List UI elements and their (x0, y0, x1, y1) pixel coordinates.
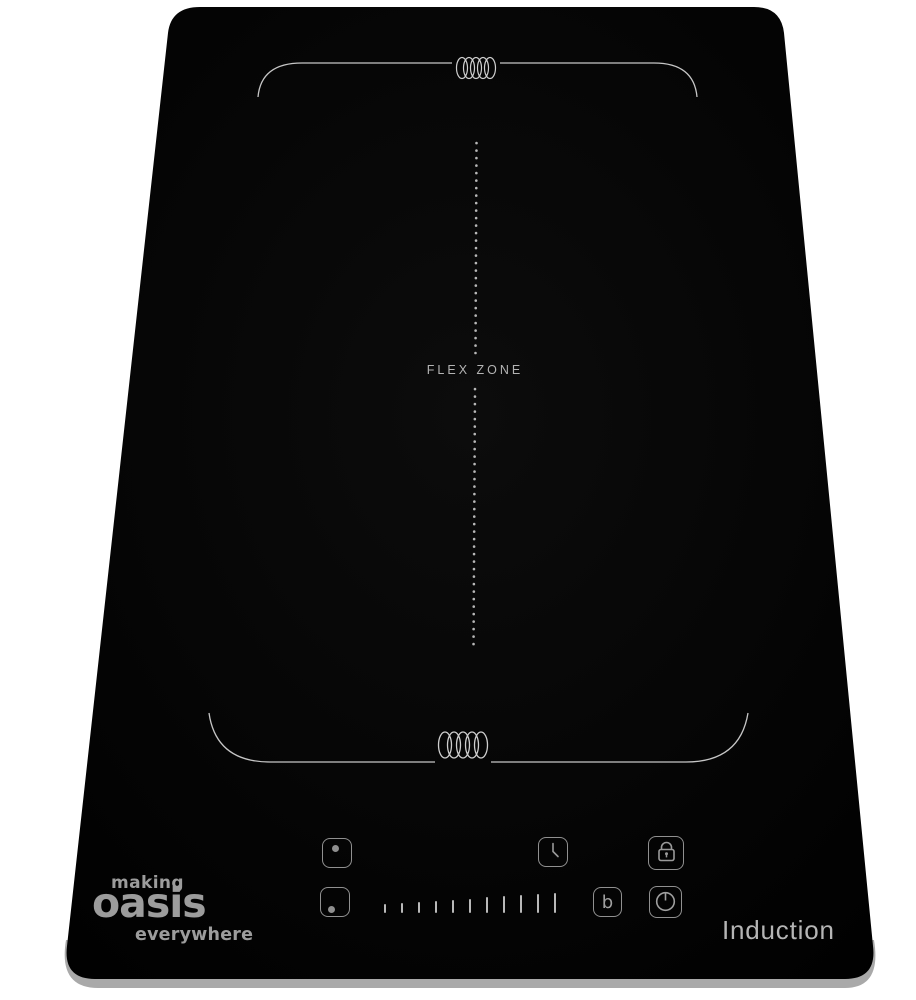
power-slider-tick[interactable] (486, 897, 488, 913)
padlock-icon (650, 837, 683, 867)
power-slider-tick[interactable] (469, 899, 471, 914)
power-slider-tick[interactable] (401, 903, 403, 913)
cooktop-panel-graphic (0, 0, 916, 1000)
power-slider-tick[interactable] (503, 896, 505, 913)
clock-icon (540, 838, 566, 864)
power-slider-tick[interactable] (452, 900, 454, 913)
power-slider-tick[interactable] (384, 904, 386, 913)
booster-label: b (594, 888, 621, 916)
power-slider-tick[interactable] (435, 901, 437, 913)
timer-button[interactable] (538, 837, 568, 867)
booster-button[interactable]: b (593, 887, 622, 917)
brand-logo-oasis: oasis (92, 883, 206, 924)
lock-button[interactable] (648, 836, 684, 870)
power-button[interactable] (649, 886, 682, 918)
power-standby-icon (651, 887, 680, 915)
brand-logo-everywhere: everywhere (135, 925, 253, 945)
model-label: Induction (722, 915, 835, 946)
zone-bottom-dot-icon (328, 906, 335, 913)
power-slider[interactable] (384, 886, 556, 913)
flex-zone-label: FLEX ZONE (375, 363, 575, 377)
power-slider-tick[interactable] (418, 902, 420, 913)
cooktop-product-photo: FLEX ZONE b making oasis every (0, 0, 916, 1000)
power-slider-tick[interactable] (537, 894, 539, 913)
zone-select-bottom-button[interactable] (320, 887, 350, 917)
power-slider-tick[interactable] (554, 893, 556, 913)
zone-top-dot-icon (332, 845, 339, 852)
zone-select-top-button[interactable] (322, 838, 352, 868)
cooktop-panel (67, 7, 874, 979)
power-slider-tick[interactable] (520, 895, 522, 913)
